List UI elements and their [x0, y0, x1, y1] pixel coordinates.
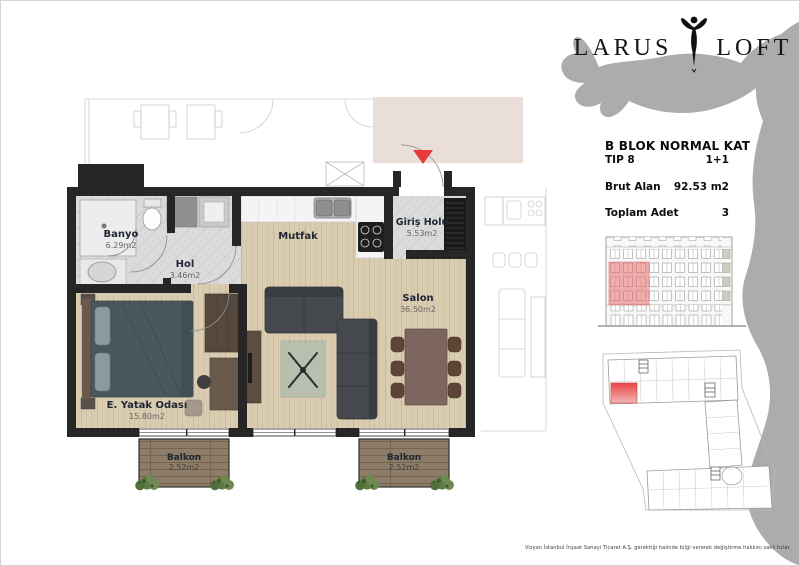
- block-title: B BLOK NORMAL KAT: [605, 139, 729, 153]
- brand-logo: LARUS LOFT: [567, 15, 799, 81]
- label-balkon-right-area: 2.52m2: [389, 463, 420, 472]
- building-elevation: [596, 233, 748, 333]
- label-balkon-right: Balkon: [387, 453, 421, 463]
- label-banyo-area: 6.29m2: [106, 241, 137, 250]
- desk: [210, 358, 238, 410]
- label-banyo: Banyo: [104, 229, 139, 240]
- logo-figure-icon: [679, 14, 709, 74]
- label-salon: Salon: [402, 293, 433, 304]
- logo-word-loft: LOFT: [716, 35, 792, 62]
- brut-alan-value: 92.53 m2: [674, 181, 729, 193]
- desk-chair: [197, 375, 211, 389]
- label-hol: Hol: [176, 259, 195, 270]
- label-balkon-left-area: 2.52m2: [169, 463, 200, 472]
- info-panel: B BLOK NORMAL KAT TIP 8 1+1 Brut Alan 92…: [605, 139, 729, 219]
- wardrobe: [205, 294, 238, 352]
- label-yatak-area: 15.80m2: [129, 412, 165, 421]
- dining-table: [405, 329, 447, 405]
- site-unit-highlight: [611, 383, 637, 403]
- label-hol-area: 3.46m2: [170, 271, 201, 280]
- label-giris: Giriş Holu: [396, 217, 448, 228]
- corridor-block: [373, 97, 523, 163]
- label-salon-area: 36.50m2: [400, 305, 436, 314]
- elevation-highlight: [609, 262, 649, 305]
- logo-word-larus: LARUS: [574, 35, 673, 62]
- brut-alan-label: Brut Alan: [605, 181, 661, 193]
- brochure-page: Banyo 6.29m2 Hol 3.46m2 Mutfak Giriş Hol…: [0, 0, 800, 566]
- label-mutfak: Mutfak: [278, 231, 318, 242]
- label-yatak: E. Yatak Odası: [107, 400, 188, 411]
- toplam-adet-label: Toplam Adet: [605, 207, 679, 219]
- disclaimer: Vizyon İstanbul İnşaat Sanayi Ticaret A.…: [481, 545, 791, 551]
- tip-label: TIP 8: [605, 154, 635, 166]
- label-giris-area: 5.53m2: [407, 229, 438, 238]
- windows: [139, 429, 449, 436]
- stove: [358, 222, 384, 252]
- site-plan: [589, 343, 779, 511]
- label-balkon-left: Balkon: [167, 453, 201, 463]
- toplam-adet-value: 3: [722, 207, 729, 219]
- tip-value: 1+1: [706, 154, 729, 166]
